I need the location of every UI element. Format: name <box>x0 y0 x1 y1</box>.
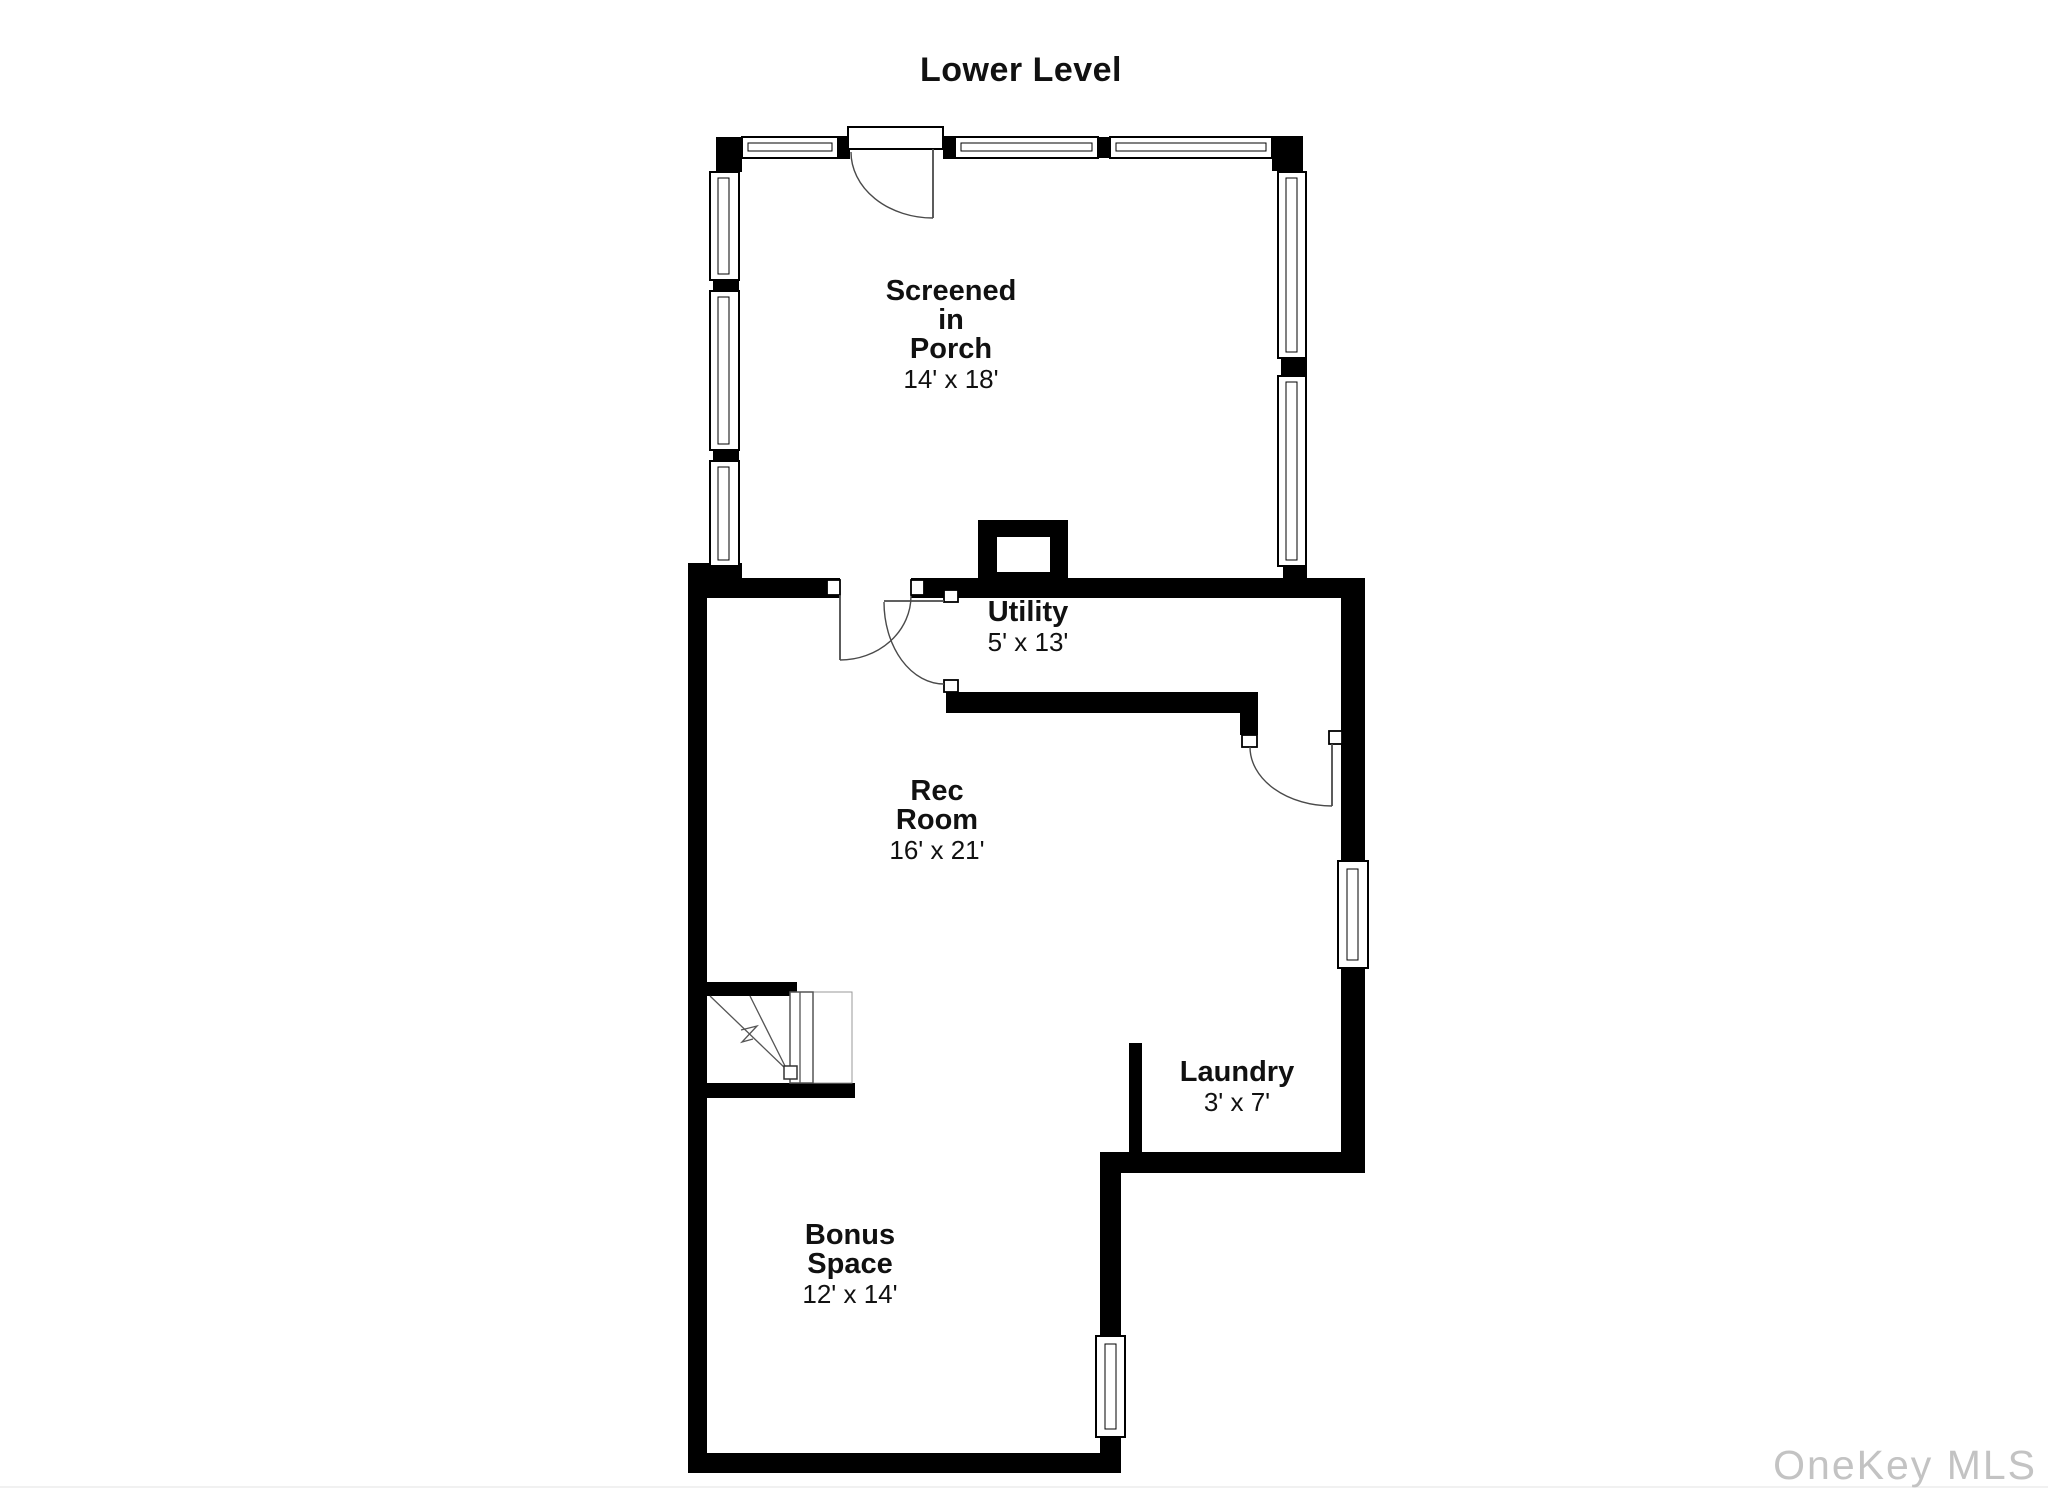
porch-door-jamb-right <box>943 136 955 159</box>
room-name-line: in <box>886 306 1017 335</box>
bonus-right-wall-upper <box>1100 1152 1121 1338</box>
stair-wall-upper <box>706 982 797 996</box>
room-name-line: Bonus <box>802 1221 897 1250</box>
rec-east-door-jamb-left <box>1242 735 1257 747</box>
wall-segments <box>688 136 1365 1473</box>
porch-left-window-3 <box>710 461 739 566</box>
rec-door-jamb-left <box>827 580 840 595</box>
room-dimensions: 16' x 21' <box>889 835 984 865</box>
room-label-rec-room: Rec Room 16' x 21' <box>889 777 984 865</box>
room-name-line: Laundry <box>1180 1058 1294 1087</box>
room-name-line: Porch <box>886 335 1017 364</box>
floorplan-page: Lower Level Screened in Porch 14' x 18' … <box>0 0 2048 1489</box>
stair-direction-line-1 <box>710 996 787 1070</box>
porch-left-separator-1 <box>713 280 739 291</box>
laundry-left-wall <box>1129 1043 1142 1153</box>
room-name-line: Screened <box>886 277 1017 306</box>
stair-wall-lower <box>706 1083 855 1098</box>
main-left-wall <box>688 578 707 1473</box>
room-name-line: Rec <box>889 777 984 806</box>
stair-landing <box>812 992 852 1083</box>
porch-right-separator <box>1281 358 1307 376</box>
bonus-right-wall-lower <box>1100 1436 1121 1473</box>
main-right-wall-lower <box>1341 967 1365 1173</box>
porch-door-frame <box>848 127 943 149</box>
room-dimensions: 5' x 13' <box>988 627 1069 657</box>
stair-direction-line-2 <box>750 996 787 1070</box>
porch-left-window-1 <box>710 172 739 280</box>
staircase <box>710 992 852 1083</box>
porch-pillar-left <box>716 137 742 172</box>
laundry-bottom-wall <box>1100 1152 1360 1173</box>
main-top-wall-left <box>688 578 840 598</box>
bonus-space-window <box>1096 1336 1125 1437</box>
utility-door-jamb-top <box>944 590 958 602</box>
porch-top-window-2 <box>955 137 1098 158</box>
porch-pillar-right <box>1272 136 1303 171</box>
room-name-line: Room <box>889 806 984 835</box>
rec-east-door-jamb-right <box>1329 731 1342 744</box>
room-label-porch: Screened in Porch 14' x 18' <box>886 277 1017 394</box>
porch-left-window-2 <box>710 291 739 450</box>
room-label-bonus-space: Bonus Space 12' x 14' <box>802 1221 897 1309</box>
porch-top-window-1 <box>742 137 838 158</box>
porch-top-separator <box>1098 137 1110 158</box>
page-title: Lower Level <box>920 51 1122 90</box>
rec-room-window <box>1338 861 1368 968</box>
rec-door-jamb-right <box>911 580 924 595</box>
watermark: OneKey MLS <box>1773 1442 2037 1489</box>
rec-east-door-swing-arc <box>1250 747 1332 806</box>
porch-top-window-3 <box>1110 137 1272 158</box>
utility-wall-jog <box>1240 713 1258 735</box>
room-dimensions: 14' x 18' <box>886 364 1017 394</box>
room-label-utility: Utility 5' x 13' <box>988 598 1069 657</box>
utility-bottom-wall <box>946 692 1258 713</box>
main-bottom-wall <box>688 1453 1121 1473</box>
porch-left-separator-2 <box>713 450 739 461</box>
room-label-laundry: Laundry 3' x 7' <box>1180 1058 1294 1117</box>
chimney-flue <box>997 537 1050 572</box>
rec-door-swing-arc <box>840 596 911 660</box>
room-dimensions: 12' x 14' <box>802 1279 897 1309</box>
main-right-wall-upper <box>1341 578 1365 863</box>
utility-door-swing-arc <box>884 602 944 684</box>
floorplan-drawing <box>0 0 2048 1489</box>
room-name-line: Utility <box>988 598 1069 627</box>
porch-door-swing-arc <box>851 152 933 218</box>
main-top-wall-right <box>911 578 1341 598</box>
porch-right-window-1 <box>1278 172 1306 358</box>
room-dimensions: 3' x 7' <box>1180 1087 1294 1117</box>
utility-door-jamb-bottom <box>944 680 958 692</box>
porch-right-window-2 <box>1278 376 1306 566</box>
stair-newel-marker <box>784 1066 797 1079</box>
room-name-line: Space <box>802 1250 897 1279</box>
